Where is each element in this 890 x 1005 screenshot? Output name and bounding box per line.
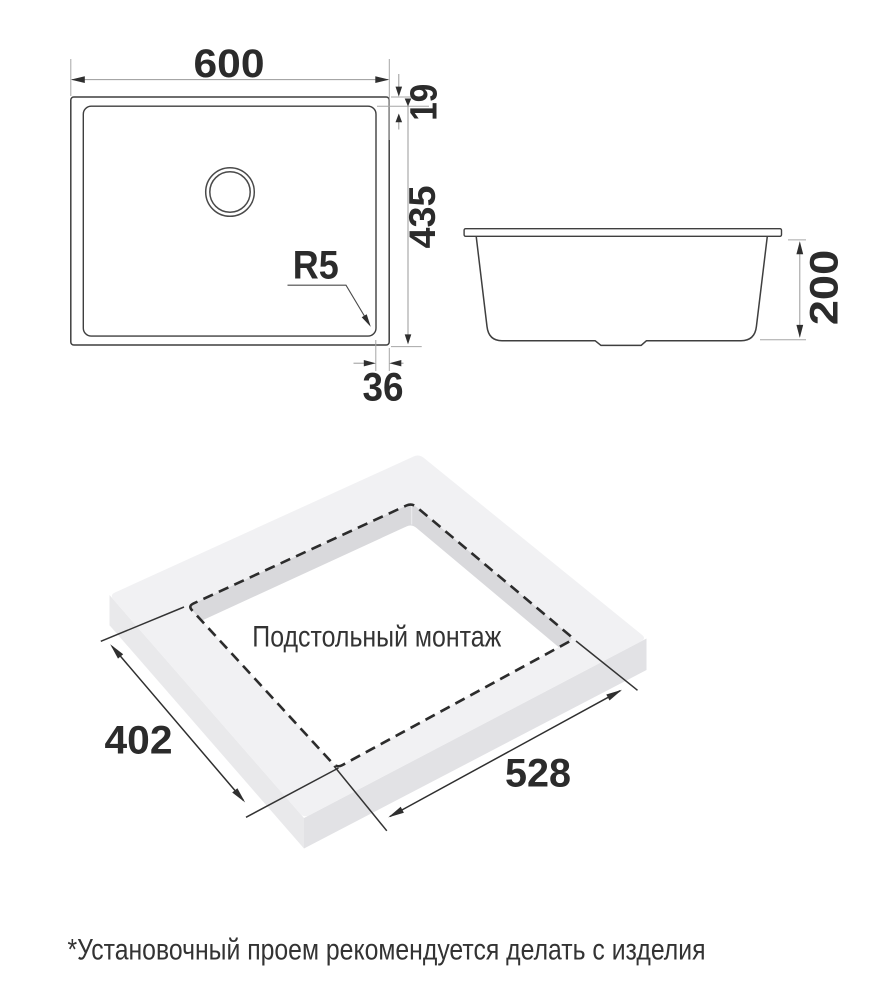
svg-text:200: 200 (803, 250, 847, 326)
svg-text:R5: R5 (293, 243, 339, 287)
svg-text:402: 402 (105, 718, 173, 762)
svg-text:36: 36 (363, 366, 404, 410)
svg-text:*Установочный проем рекомендуе: *Установочный проем рекомендуется делать… (68, 933, 706, 966)
svg-text:600: 600 (194, 42, 265, 86)
svg-text:Подстольный монтаж: Подстольный монтаж (252, 621, 501, 654)
svg-text:435: 435 (401, 186, 443, 249)
svg-text:528: 528 (505, 751, 571, 795)
